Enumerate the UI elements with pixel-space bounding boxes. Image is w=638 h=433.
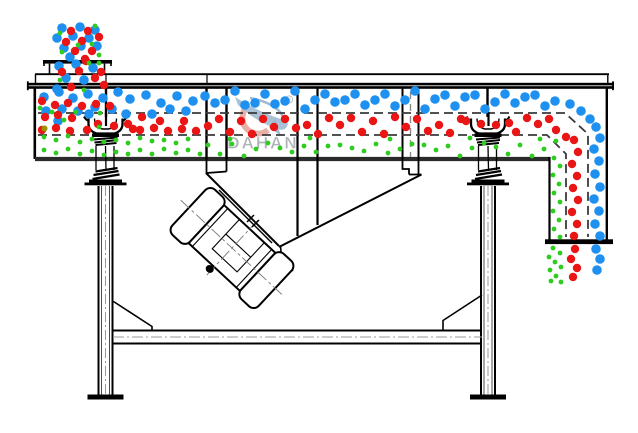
svg-text:DAHAN: DAHAN [227,134,298,153]
